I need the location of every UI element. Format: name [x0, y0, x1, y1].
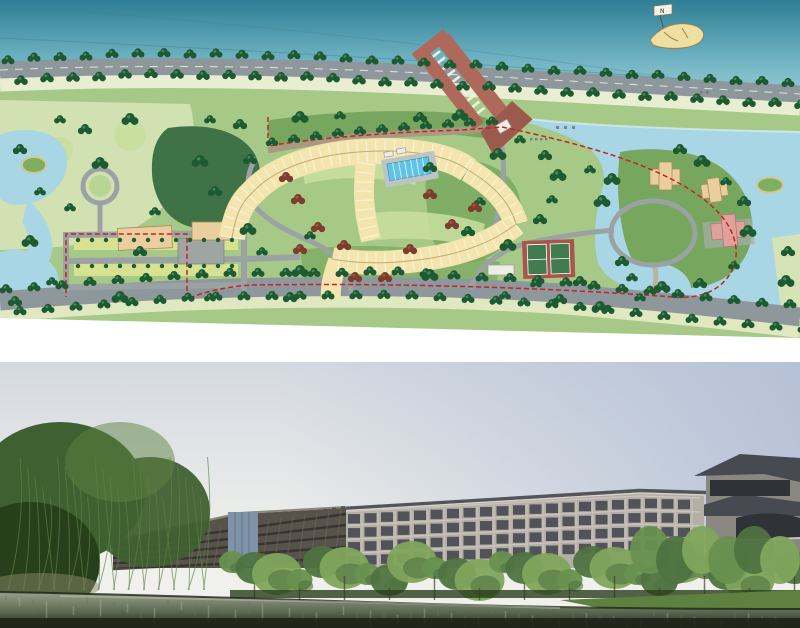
- lake-island: [757, 178, 783, 193]
- pond-island: [22, 157, 46, 173]
- site-plan-image: N: [0, 0, 800, 338]
- lawn-patch: [114, 119, 146, 151]
- parking-row: [74, 264, 238, 276]
- water-foreground-dark: [0, 618, 800, 628]
- tennis-courts: [522, 239, 575, 279]
- roundabout-lawn: [89, 175, 111, 197]
- north-label: N: [660, 8, 665, 15]
- photo-image: [0, 362, 800, 628]
- west-building-1: [117, 226, 172, 251]
- page: N: [0, 0, 800, 628]
